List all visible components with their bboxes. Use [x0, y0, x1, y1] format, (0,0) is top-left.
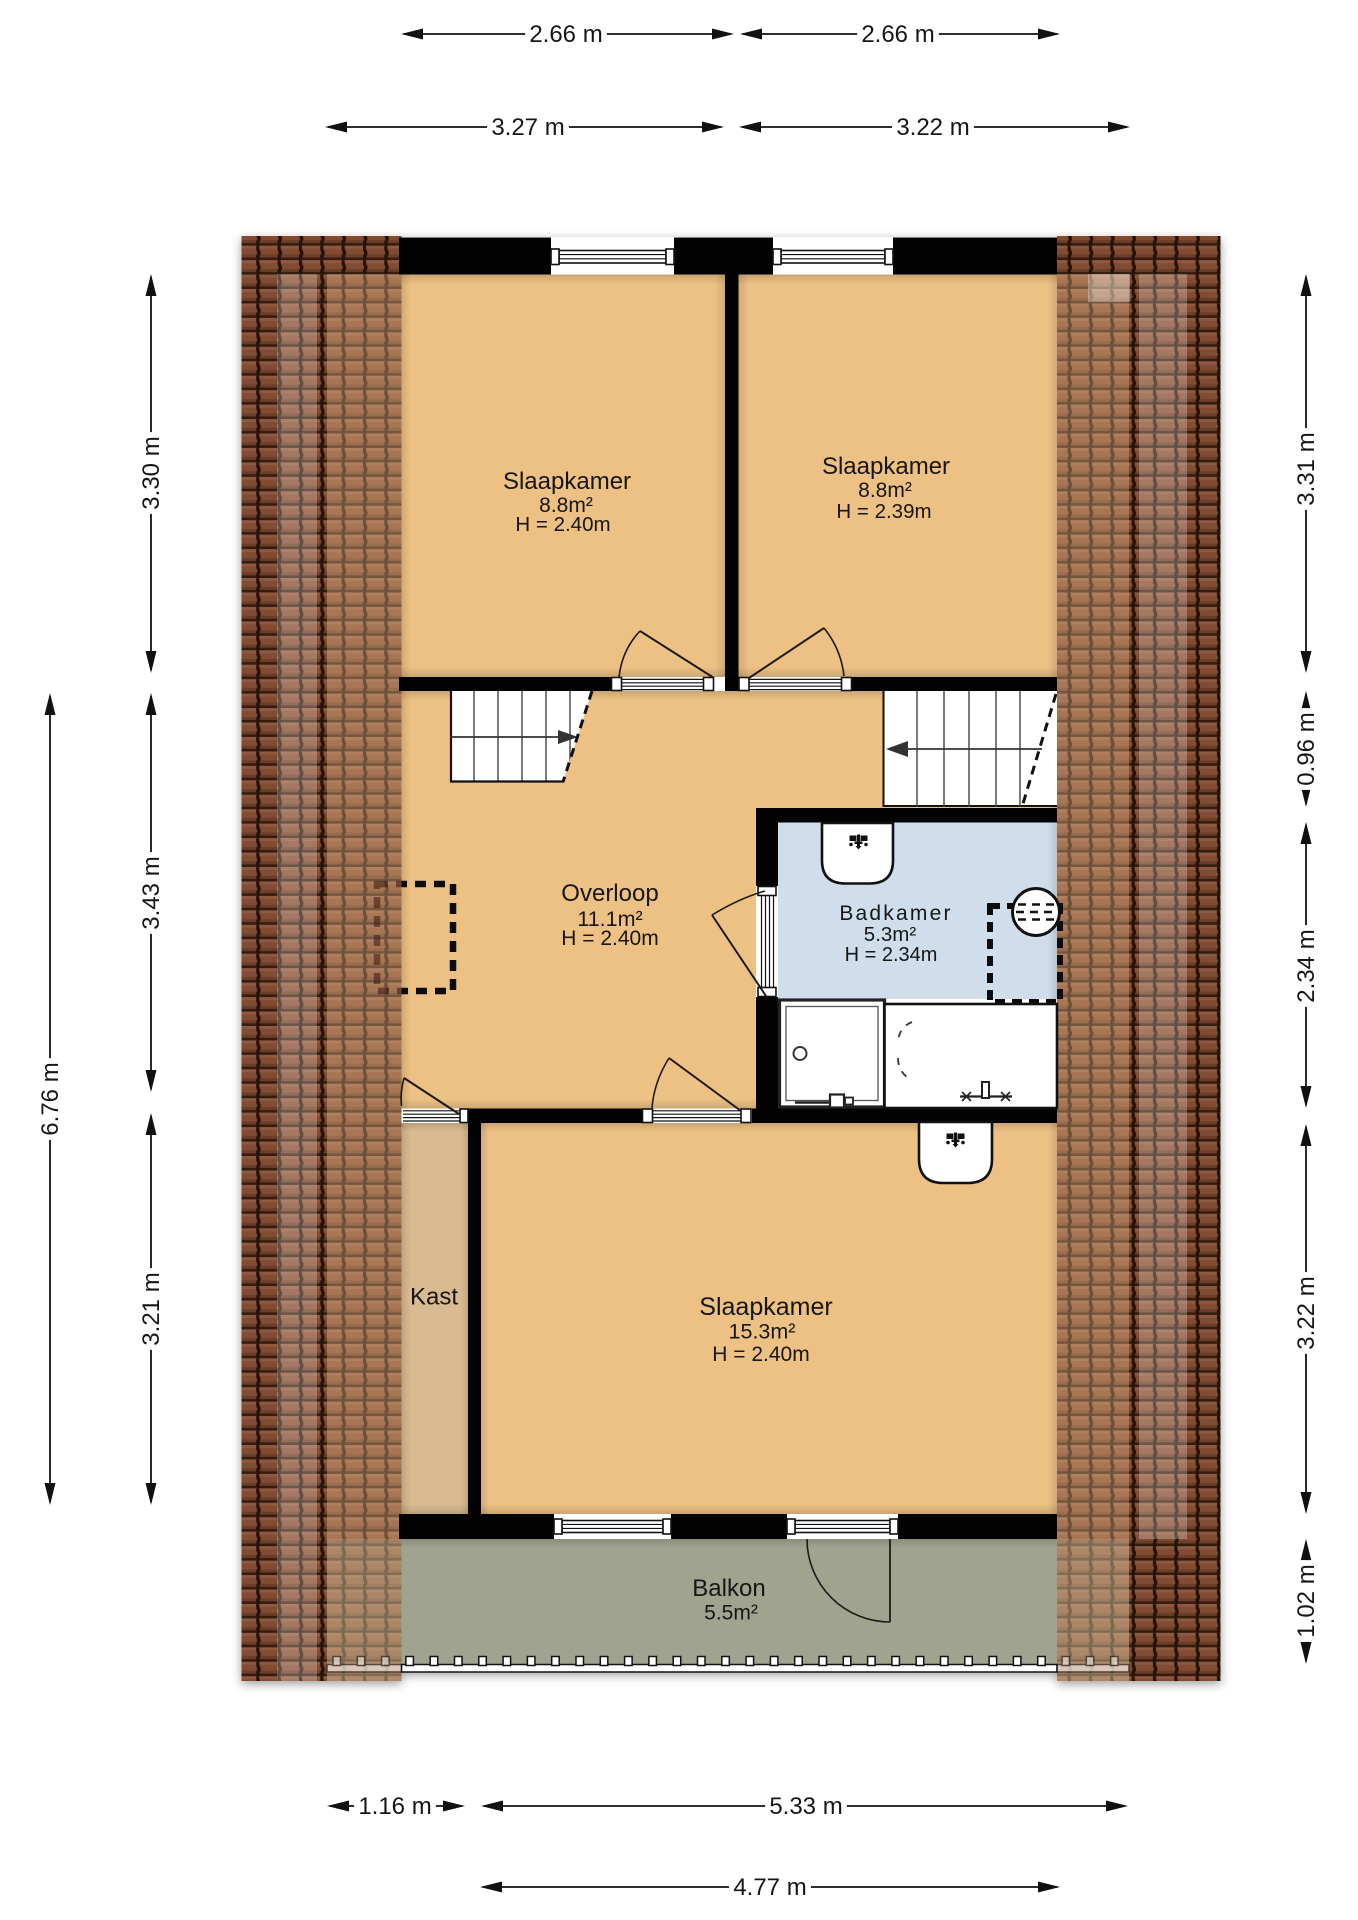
svg-text:3.22 m: 3.22 m: [896, 114, 969, 141]
svg-text:1.02 m: 1.02 m: [1293, 1564, 1320, 1637]
svg-text:Badkamer: Badkamer: [839, 902, 952, 925]
svg-text:2.66 m: 2.66 m: [861, 21, 934, 48]
svg-text:Slaapkamer: Slaapkamer: [822, 453, 950, 480]
svg-text:3.21 m: 3.21 m: [138, 1272, 165, 1345]
svg-text:Overloop: Overloop: [561, 880, 658, 907]
svg-text:H = 2.40m: H = 2.40m: [561, 927, 658, 950]
svg-text:5.33 m: 5.33 m: [769, 1793, 842, 1820]
svg-text:Kast: Kast: [410, 1284, 458, 1311]
svg-text:H = 2.39m: H = 2.39m: [836, 500, 931, 523]
svg-text:15.3m²: 15.3m²: [729, 1320, 796, 1344]
svg-text:0.96 m: 0.96 m: [1293, 712, 1320, 785]
svg-text:3.30 m: 3.30 m: [138, 436, 165, 509]
svg-text:Balkon: Balkon: [692, 1575, 765, 1602]
svg-text:4.77 m: 4.77 m: [733, 1874, 806, 1901]
svg-text:6.76 m: 6.76 m: [37, 1062, 64, 1135]
svg-text:3.43 m: 3.43 m: [138, 856, 165, 929]
svg-text:1.16 m: 1.16 m: [358, 1793, 431, 1820]
svg-text:2.66 m: 2.66 m: [529, 21, 602, 48]
svg-text:5.5m²: 5.5m²: [704, 1602, 758, 1625]
svg-text:H = 2.40m: H = 2.40m: [712, 1343, 809, 1366]
svg-text:3.22 m: 3.22 m: [1293, 1276, 1320, 1349]
svg-text:3.27 m: 3.27 m: [491, 114, 564, 141]
svg-text:8.8m²: 8.8m²: [858, 479, 912, 502]
svg-text:3.31 m: 3.31 m: [1293, 432, 1320, 505]
svg-text:H = 2.34m: H = 2.34m: [845, 944, 938, 966]
svg-text:H = 2.40m: H = 2.40m: [515, 513, 610, 536]
svg-text:Slaapkamer: Slaapkamer: [503, 468, 631, 495]
svg-text:5.3m²: 5.3m²: [864, 923, 917, 946]
svg-text:Slaapkamer: Slaapkamer: [699, 1293, 832, 1321]
svg-text:2.34 m: 2.34 m: [1293, 929, 1320, 1002]
